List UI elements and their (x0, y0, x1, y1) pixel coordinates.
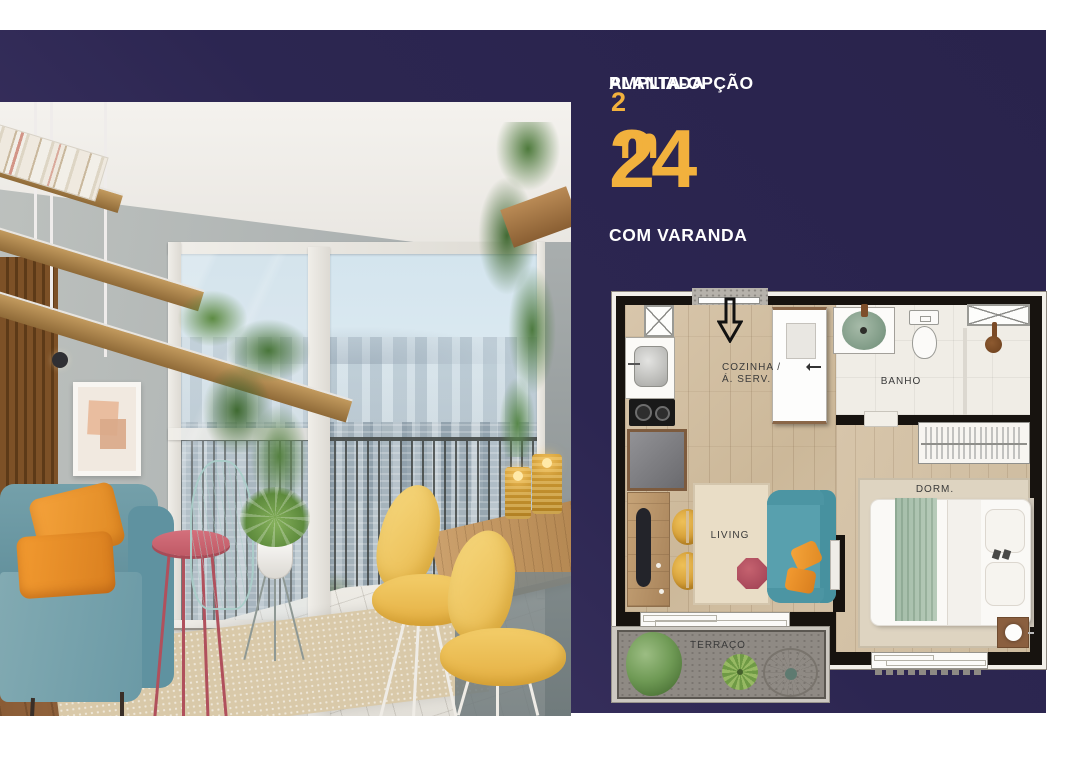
coffee-table (737, 558, 767, 589)
hanging-chair-icon (763, 648, 818, 697)
bed (871, 500, 1030, 625)
candle-holder (532, 454, 562, 514)
large-plant-icon (626, 632, 682, 696)
room-label-kitchen: COZINHA / Á. SERV. (662, 362, 782, 374)
closet-hangers (918, 422, 1030, 464)
bathroom-door (864, 411, 898, 427)
bedroom-window (871, 652, 988, 669)
bed-runner (895, 498, 937, 621)
room-label-bedroom: DORM. (895, 484, 975, 496)
orange-cushion (16, 531, 116, 600)
terrace: TERRAÇO (617, 630, 826, 699)
sofa-plan (767, 490, 836, 603)
faucet-icon (861, 304, 868, 317)
trailing-plant (160, 277, 335, 507)
yellow-chair (440, 530, 571, 716)
candle-holder (505, 467, 531, 519)
shower-partition (963, 328, 967, 415)
cooktop-icon (629, 399, 675, 426)
kitchen-table (627, 429, 687, 491)
hanging-vine (465, 122, 570, 457)
floor-plan: BANHO COZINHA / Á. SERV. (612, 292, 1046, 669)
pillow (985, 509, 1025, 553)
tv-icon (636, 508, 651, 587)
bathroom-vanity (833, 307, 895, 354)
toilet-bowl (912, 326, 937, 359)
wall-art (73, 382, 141, 476)
nightstand-lamp (997, 617, 1029, 648)
potted-plant (240, 487, 310, 675)
shelf-niche-icon (967, 304, 1030, 326)
cushion (784, 567, 817, 595)
door-handle (807, 366, 821, 368)
room-label-bathroom: BANHO (856, 376, 946, 388)
wall-sconce (52, 352, 68, 368)
small-plant-icon (722, 654, 758, 690)
info-panel: PLANTA-OPÇÃO AMPLIADA 24m2 COM VARANDA (609, 73, 1029, 263)
area-unit: m (619, 117, 659, 169)
window-hatching (875, 670, 985, 675)
brochure-page: PLANTA-OPÇÃO AMPLIADA 24m2 COM VARANDA (0, 0, 1077, 768)
area-exponent: 2 (611, 87, 626, 118)
shelf-rod (104, 102, 107, 357)
side-table (830, 540, 840, 590)
plan-subtitle: COM VARANDA (609, 225, 748, 246)
tv-sideboard (627, 492, 670, 607)
pillow (985, 562, 1025, 606)
entry-arrow-icon (717, 297, 743, 343)
shower-head-icon (985, 336, 1002, 353)
navy-band: PLANTA-OPÇÃO AMPLIADA 24m2 COM VARANDA (0, 30, 1046, 713)
room-label-living: LIVING (680, 530, 780, 542)
toilet-icon (909, 310, 939, 325)
fridge-icon (644, 305, 674, 337)
shelf-rod (50, 102, 53, 312)
apartment-photo (0, 102, 571, 716)
